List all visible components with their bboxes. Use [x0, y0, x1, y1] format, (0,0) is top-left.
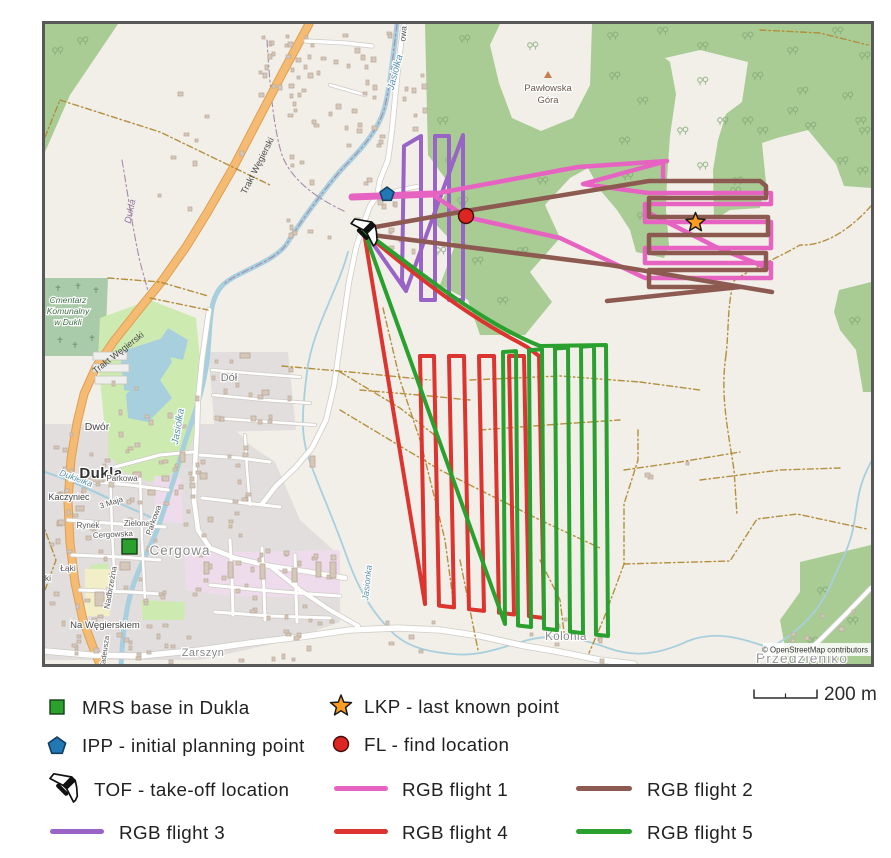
svg-text:FL - find location: FL - find location — [364, 734, 509, 755]
svg-text:RGB flight 4: RGB flight 4 — [402, 822, 508, 843]
svg-text:Cergowa: Cergowa — [149, 543, 210, 558]
svg-text:Komunalny: Komunalny — [47, 306, 90, 316]
svg-text:ki: ki — [45, 573, 51, 583]
svg-text:200 m: 200 m — [824, 684, 877, 705]
svg-text:Pawłowska: Pawłowska — [524, 83, 572, 94]
svg-text:LKP - last known point: LKP - last known point — [364, 696, 560, 717]
svg-text:© OpenStreetMap contributors: © OpenStreetMap contributors — [762, 646, 868, 655]
svg-text:Parkowa: Parkowa — [106, 474, 138, 483]
svg-text:w Dukli: w Dukli — [54, 317, 83, 327]
svg-text:TOF - take-off location: TOF - take-off location — [94, 779, 289, 800]
svg-text:Dwór: Dwór — [85, 421, 110, 433]
svg-text:IPP - initial planning point: IPP - initial planning point — [82, 735, 305, 756]
svg-text:RGB flight 3: RGB flight 3 — [119, 822, 225, 843]
svg-text:Kaczyniec: Kaczyniec — [48, 492, 90, 502]
svg-text:Cmentarz: Cmentarz — [50, 295, 88, 305]
svg-text:Rynek: Rynek — [77, 521, 101, 530]
svg-text:RGB flight 2: RGB flight 2 — [647, 779, 753, 800]
svg-text:Na Węgierskiem: Na Węgierskiem — [70, 620, 140, 631]
svg-text:Łąki: Łąki — [60, 563, 76, 573]
svg-text:Góra: Góra — [537, 95, 559, 106]
svg-text:Zarszyn: Zarszyn — [182, 647, 225, 659]
svg-text:MRS base in Dukla: MRS base in Dukla — [82, 697, 250, 718]
svg-text:RGB flight 1: RGB flight 1 — [402, 779, 508, 800]
svg-text:RGB flight 5: RGB flight 5 — [647, 822, 753, 843]
svg-text:owa: owa — [397, 25, 408, 42]
svg-text:Dół: Dół — [221, 372, 238, 384]
